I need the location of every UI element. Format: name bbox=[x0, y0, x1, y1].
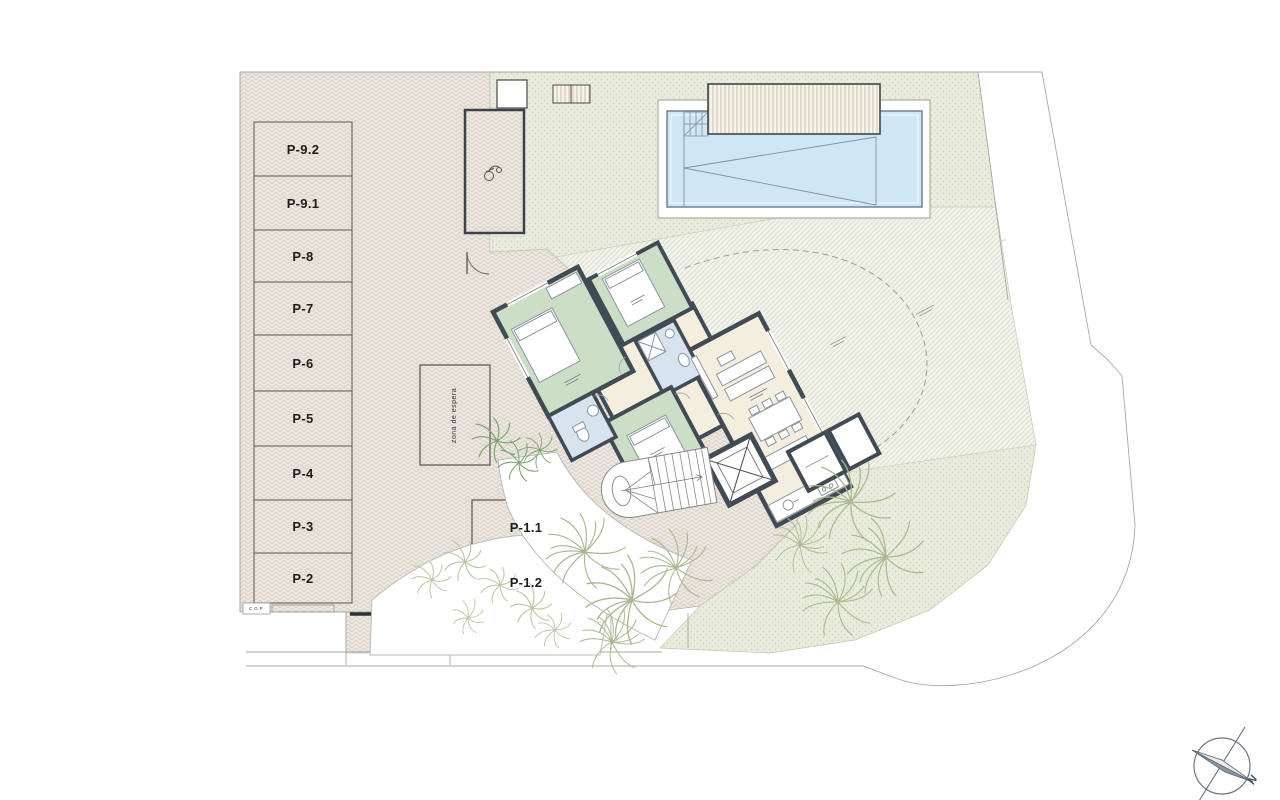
parking-stall-label-p92: P-9.2 bbox=[254, 122, 352, 176]
parking-stall-label-p12: P-1.2 bbox=[472, 555, 580, 610]
storage-structure bbox=[465, 110, 524, 233]
small-white-box bbox=[497, 80, 527, 108]
parking-stall-label-p6: P-6 bbox=[254, 335, 352, 391]
parking-stall-label-p7: P-7 bbox=[254, 282, 352, 335]
parking-stall-label-p91: P-9.1 bbox=[254, 176, 352, 230]
utility-cgp-label: C.G.P. bbox=[243, 603, 270, 614]
parking-stall-label-p11: P-1.1 bbox=[472, 500, 580, 555]
parking-stall-label-p2: P-2 bbox=[254, 553, 352, 603]
pool-pergola bbox=[708, 84, 880, 134]
parking-stall-label-p4: P-4 bbox=[254, 446, 352, 500]
site-plan-page: P-9.2 P-9.1 P-8 P-7 P-6 P-5 P-4 P-3 P-2 … bbox=[0, 0, 1280, 800]
site-plan-drawing bbox=[0, 0, 1280, 800]
parking-stall-label-p3: P-3 bbox=[254, 500, 352, 553]
pool bbox=[658, 84, 930, 218]
compass-rose bbox=[1192, 727, 1253, 800]
waiting-zone-label: zona de espera bbox=[420, 365, 490, 465]
parking-stall-label-p5: P-5 bbox=[254, 391, 352, 446]
parking-stall-label-p8: P-8 bbox=[254, 230, 352, 282]
